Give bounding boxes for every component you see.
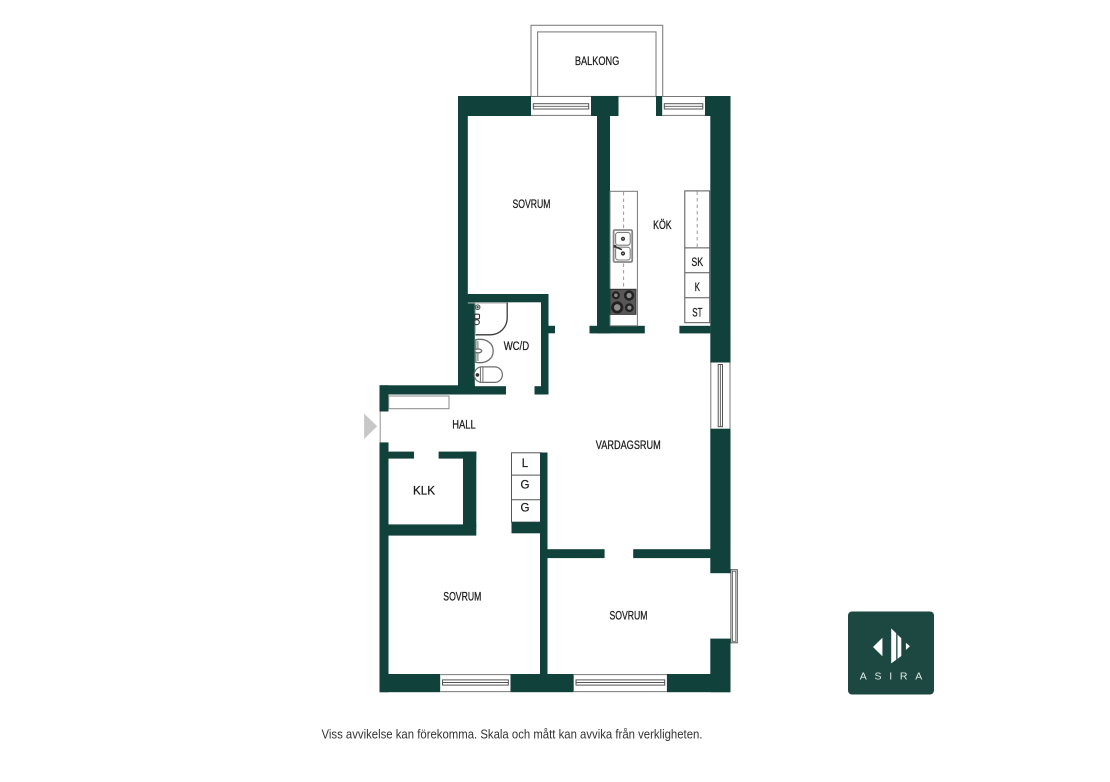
svg-text:VARDAGSRUM: VARDAGSRUM: [596, 440, 661, 452]
svg-text:SOVRUM: SOVRUM: [513, 199, 551, 211]
svg-text:KÖK: KÖK: [653, 220, 672, 232]
svg-text:K: K: [695, 282, 700, 294]
svg-text:WC/D: WC/D: [504, 341, 529, 353]
svg-text:HALL: HALL: [452, 420, 476, 432]
svg-text:G: G: [521, 503, 530, 515]
svg-text:SK: SK: [691, 257, 703, 269]
svg-text:ST: ST: [692, 308, 702, 320]
svg-text:BALKONG: BALKONG: [575, 56, 620, 68]
svg-text:L: L: [522, 458, 529, 470]
svg-text:SOVRUM: SOVRUM: [610, 611, 648, 623]
svg-text:G: G: [521, 479, 530, 491]
svg-text:KLK: KLK: [413, 485, 435, 497]
svg-text:Viss avvikelse kan förekomma.: Viss avvikelse kan förekomma. Skala och …: [322, 727, 703, 742]
svg-text:SOVRUM: SOVRUM: [443, 591, 481, 603]
